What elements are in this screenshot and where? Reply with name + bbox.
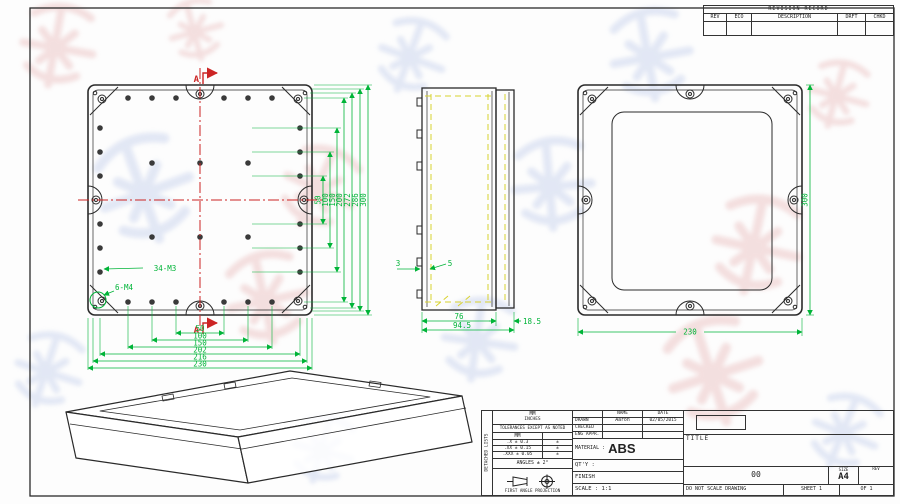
svg-text:3: 3 [396,259,401,268]
logo-box [696,415,746,430]
svg-text:94.5: 94.5 [453,321,471,330]
hidden-lines [425,94,505,306]
svg-text:230: 230 [683,328,697,337]
revision-record-table: REVISION RECORD REV ECO DESCRIPTION DRFT… [703,5,894,36]
callout-6-m4: 6-M4 [115,283,134,292]
do-not-scale-cell: DO NOT SCALE DRAWING [683,484,784,496]
side-view-dim-text: 3 5 76 94.5 18.5 [396,259,541,330]
material-value: ABS [608,442,635,456]
title-area: TITLE [683,434,894,467]
size-cell: SIZE A4 [828,466,859,485]
material-label: MATERIAL : [575,446,605,452]
section-label-top: A [194,75,200,85]
projection-cell: FIRST ANGLE PROJECTION [492,468,573,496]
rear-view-dimensions [578,85,814,336]
svg-text:300: 300 [359,193,368,207]
sheet-cell: SHEET 1 [783,484,840,496]
callout-34-m3: 34-M3 [154,264,177,273]
revision-empty-chkd [865,21,894,36]
title-block: DETACHED LISTS MM INCHES TOLERANCES EXCE… [481,410,894,496]
side-view [417,88,514,310]
isometric-view [66,371,472,483]
svg-text:18.5: 18.5 [523,317,541,326]
rev-label: REV [872,467,879,471]
drawing-number-cell: 00 [683,466,829,485]
first-angle-projection-symbol [503,474,563,489]
material-row: MATERIAL : ABS [572,438,684,460]
revision-empty-eco [726,21,752,36]
revision-empty-drft [837,21,866,36]
drawing-sheet: A A [0,0,900,500]
projection-label: FIRST ANGLE PROJECTION [505,489,560,494]
units-cell: MM INCHES [492,410,573,425]
size-value: A4 [838,473,849,483]
logo-area [683,410,894,435]
scale-row: SCALE : 1:1 [572,483,684,496]
svg-text:76: 76 [454,312,464,321]
svg-text:5: 5 [448,259,453,268]
units-sub: INCHES [524,418,540,423]
sheet-of-cell: OF 1 [839,484,894,496]
svg-text:230: 230 [193,360,207,369]
revision-empty-description [751,21,838,36]
svg-text:300: 300 [801,193,810,207]
revision-empty-rev [703,21,727,36]
title-block-side-label: DETACHED LISTS [485,431,490,475]
rev-cell: REV [858,466,894,485]
